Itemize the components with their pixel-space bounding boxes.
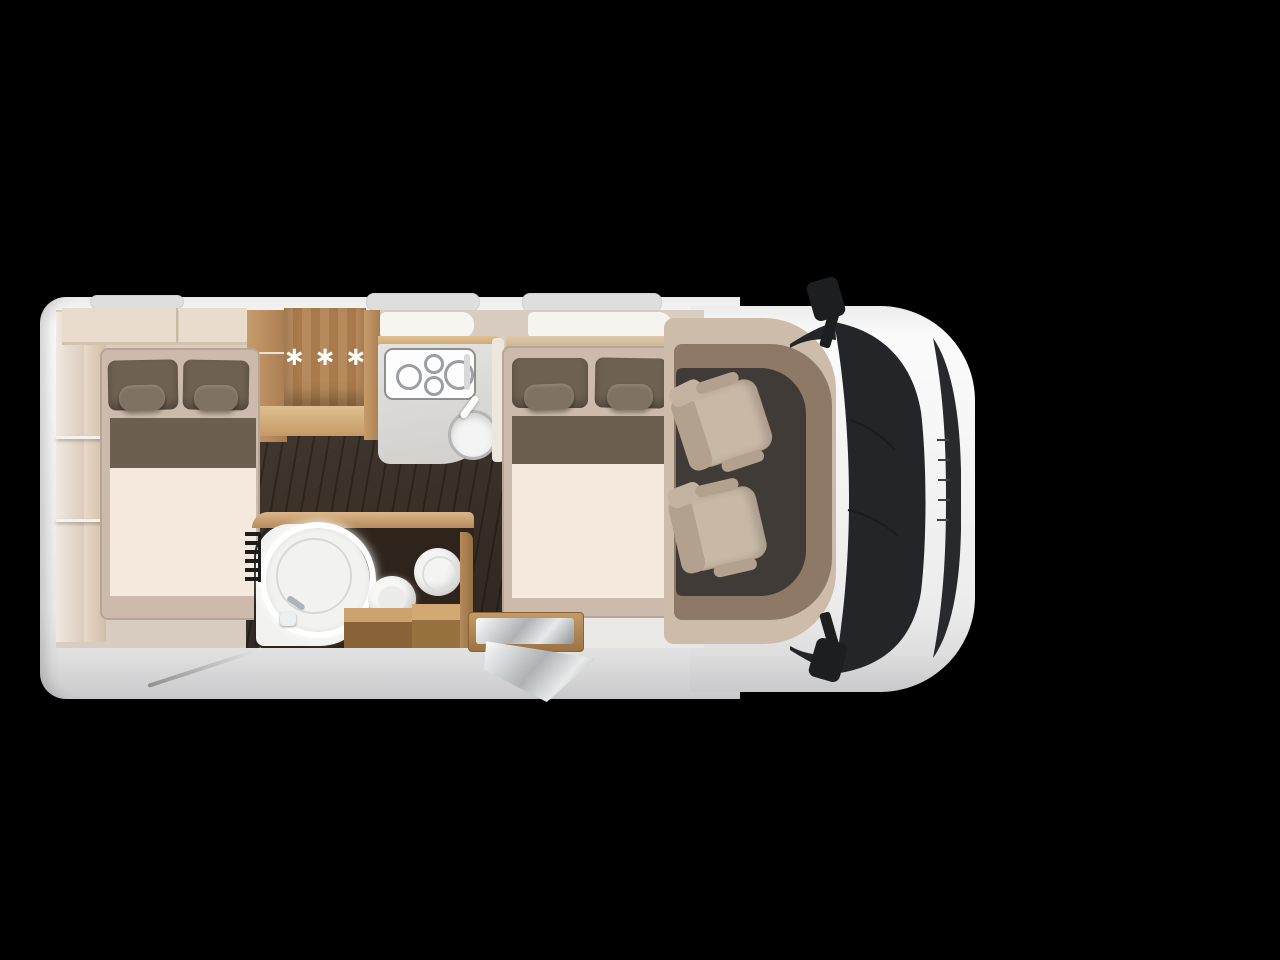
- mid-bed-mattress: [512, 464, 666, 598]
- rear-bed-mattress: [110, 468, 256, 596]
- hob-burner-mid-bottom: [424, 376, 444, 396]
- hob-burner-left: [396, 364, 422, 390]
- front-grille: [933, 338, 961, 658]
- shower-mixer: [280, 612, 296, 626]
- kitchen-counter-wood-base: [247, 406, 378, 436]
- roof-hatch-kitchen: [366, 293, 480, 311]
- rear-bed-bolster-right: [194, 385, 238, 411]
- wall-heater: [245, 532, 261, 582]
- fridge-freezer: ∗∗∗: [284, 308, 366, 406]
- shower-tray-ring: [276, 538, 352, 614]
- roof-hatch-rear: [90, 295, 184, 309]
- rear-shelf-line-upper: [56, 436, 106, 439]
- cab-front-graphics: [820, 300, 990, 700]
- toilet-lid: [422, 556, 458, 592]
- overhead-cabinet-right: [179, 308, 247, 345]
- mid-bed-bolster-left: [524, 383, 575, 411]
- hob-control-strip: [464, 354, 470, 390]
- midbed-window: [528, 312, 672, 338]
- mid-bed-blanket: [512, 416, 666, 464]
- mid-bed-bolster-right: [607, 384, 653, 410]
- rear-shelf-line-lower: [56, 519, 106, 522]
- rear-bed-blanket: [110, 418, 256, 468]
- overhead-cabinet-left: [62, 308, 178, 345]
- kitchen-sink: [448, 410, 498, 460]
- kitchen-window: [380, 312, 474, 338]
- rear-shelving-outer: [56, 312, 84, 642]
- scene-motorhome-floorplan: ∗∗∗: [0, 0, 1280, 960]
- entry-step-tread: [476, 618, 574, 644]
- rear-bed-bolster-left: [119, 384, 166, 412]
- bathroom-cabinet-left-front: [344, 622, 412, 648]
- windshield: [834, 322, 926, 674]
- hob-burner-mid-top: [424, 354, 444, 374]
